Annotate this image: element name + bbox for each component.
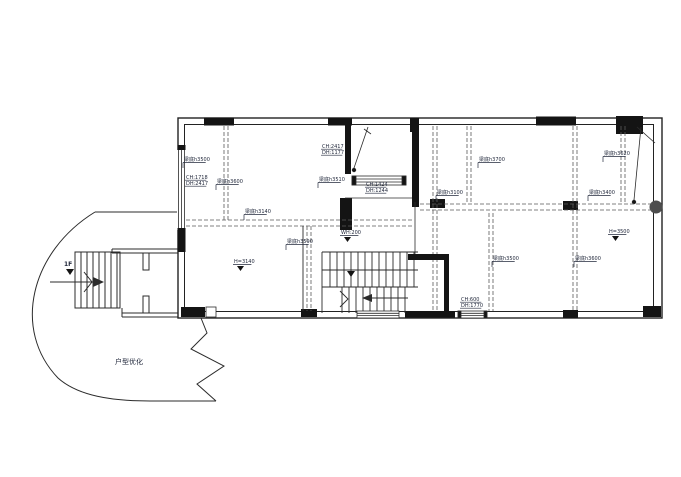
room-wall-right — [412, 124, 419, 207]
column — [204, 118, 234, 126]
room-wall-left-upper — [345, 124, 351, 174]
floor-plan-canvas: 梁底h3500梁底h3600梁底h3140梁底h3510梁底h3590梁底h37… — [0, 0, 681, 477]
level-label: WH:200 — [341, 230, 361, 236]
beam-height-label: 梁底h3700 — [479, 156, 505, 163]
closet-wall-right — [444, 260, 449, 312]
paper-background — [0, 0, 681, 477]
window-gap — [458, 311, 487, 318]
column — [563, 201, 578, 210]
beam-height-label: 梁底h3140 — [245, 208, 271, 215]
watermark-text: 户型优化 — [115, 357, 143, 366]
column — [563, 310, 578, 318]
room-wall-left-lower — [340, 198, 352, 230]
window-cap-top — [178, 145, 186, 150]
column — [616, 116, 643, 134]
entry-door — [181, 307, 216, 317]
closet-wall-top — [408, 254, 449, 260]
beam-height-label: 梁底h3590 — [287, 238, 313, 245]
entry-door-hatch — [181, 307, 205, 317]
beam-height-label: 梁底h3600 — [217, 178, 243, 185]
beam-height-label: 梁底h3500 — [184, 156, 210, 163]
sill-end — [352, 176, 356, 185]
window-gap — [357, 311, 399, 318]
beam-height-label: 梁底h3600 — [575, 255, 601, 262]
floor-label: 1F — [64, 261, 72, 268]
floor-plan-page: 梁底h3500梁底h3600梁底h3140梁底h3510梁底h3590梁底h37… — [0, 0, 681, 477]
round-column — [650, 201, 663, 214]
door-hinge-dot — [632, 200, 636, 204]
sill-end — [484, 311, 487, 318]
beam-height-label: 梁底h3510 — [319, 176, 345, 183]
door-hinge-dot — [352, 168, 356, 172]
left-wall-solid-segment — [178, 228, 186, 252]
column — [643, 306, 661, 317]
level-label: H=3140 — [234, 259, 255, 265]
beam-height-label: 梁底h3100 — [437, 189, 463, 196]
entry-door-frame — [206, 307, 216, 317]
level-label: H=3500 — [609, 229, 630, 235]
column — [536, 117, 576, 126]
beam-height-label: 梁底h3620 — [604, 150, 630, 157]
sill-end — [458, 311, 461, 318]
column — [430, 199, 445, 208]
sill-end — [402, 176, 406, 185]
beam-height-label: 梁底h3400 — [589, 189, 615, 196]
beam-height-label: 梁底h3500 — [493, 255, 519, 262]
